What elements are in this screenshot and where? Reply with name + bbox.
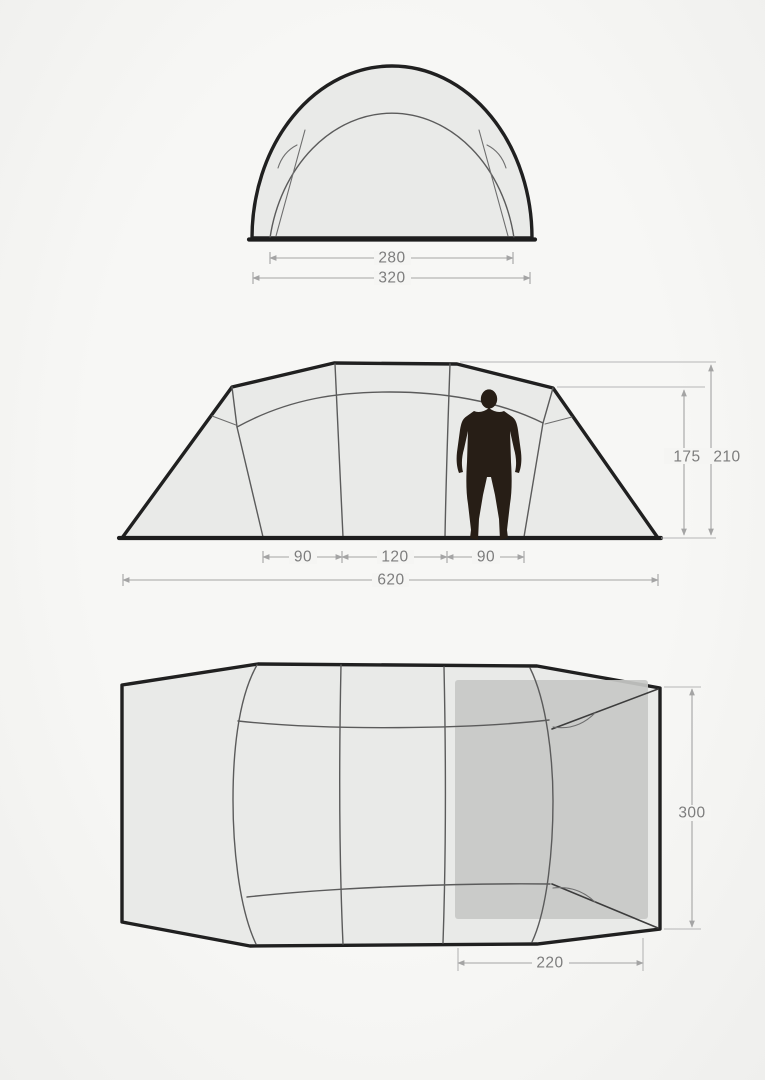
front-dome-outline bbox=[252, 66, 532, 238]
side-total-length-label: 620 bbox=[377, 572, 404, 589]
top-cabin-length-label: 220 bbox=[536, 955, 563, 972]
side-right-room-label: 90 bbox=[477, 549, 495, 566]
top-width-label: 300 bbox=[678, 805, 705, 822]
tent-diagram-page: 280 320 175 210 bbox=[0, 0, 765, 1080]
side-inner-height-label: 175 bbox=[673, 449, 700, 466]
side-view: 175 210 90 120 90 620 bbox=[119, 362, 749, 589]
sleeping-cabin-area bbox=[455, 680, 648, 919]
top-view: 300 220 bbox=[122, 664, 711, 972]
tent-diagram: 280 320 175 210 bbox=[0, 0, 765, 1080]
front-inner-width-label: 280 bbox=[378, 250, 405, 267]
front-outer-width-label: 320 bbox=[378, 270, 405, 287]
side-center-label: 120 bbox=[381, 549, 408, 566]
side-left-room-label: 90 bbox=[294, 549, 312, 566]
side-peak-height-label: 210 bbox=[713, 449, 740, 466]
side-outline bbox=[122, 363, 658, 538]
front-view: 280 320 bbox=[249, 66, 535, 287]
